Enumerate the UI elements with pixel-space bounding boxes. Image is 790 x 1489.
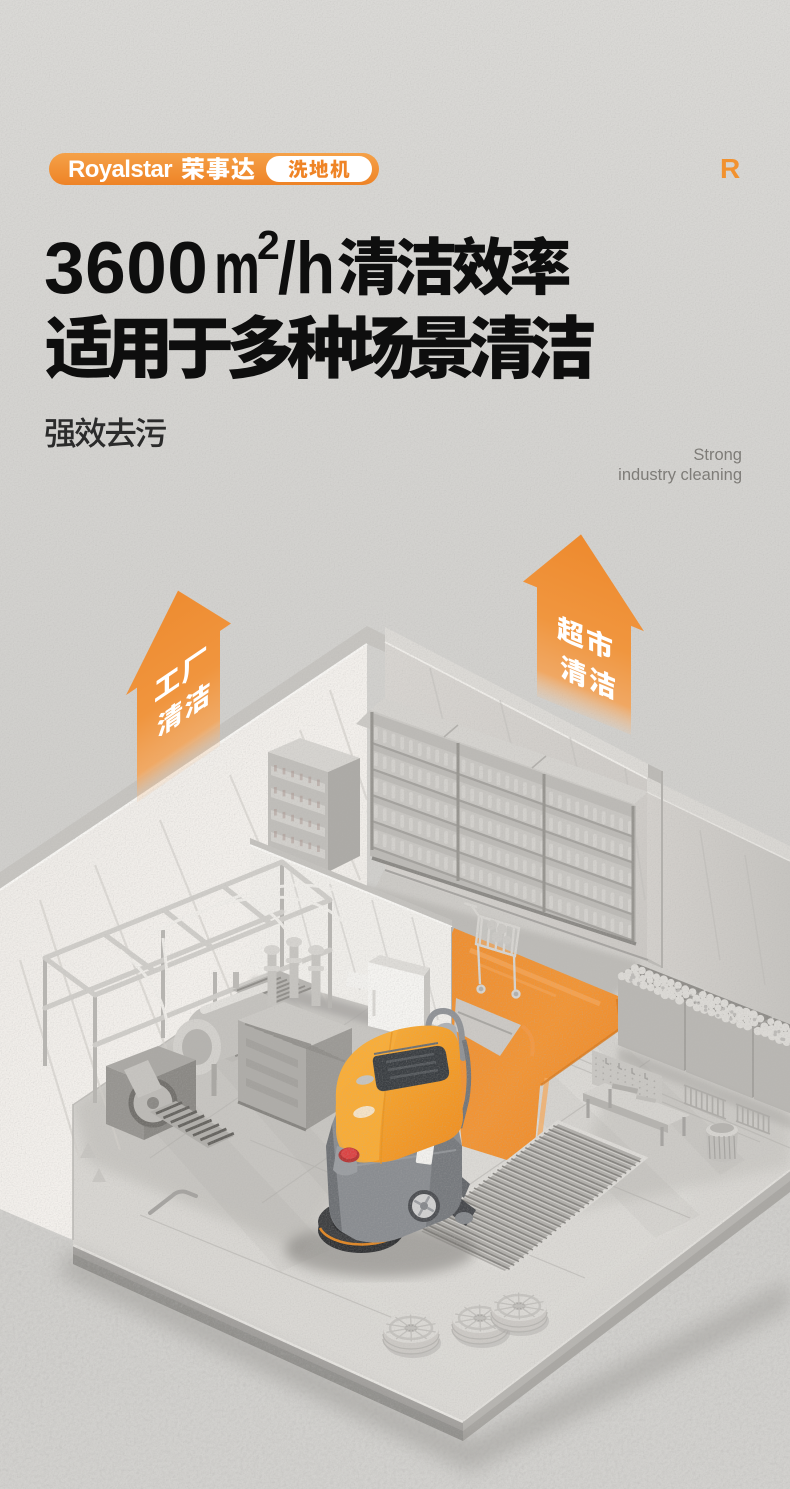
svg-text:m: m — [214, 228, 260, 309]
svg-text:Strong: Strong — [693, 446, 742, 464]
svg-text:3600: 3600 — [44, 228, 208, 309]
svg-text:Royalstar: Royalstar — [68, 156, 172, 183]
svg-text:R: R — [720, 153, 740, 184]
svg-text:2: 2 — [257, 222, 280, 268]
svg-text:/h: /h — [278, 228, 335, 309]
svg-text:industry cleaning: industry cleaning — [618, 466, 742, 484]
